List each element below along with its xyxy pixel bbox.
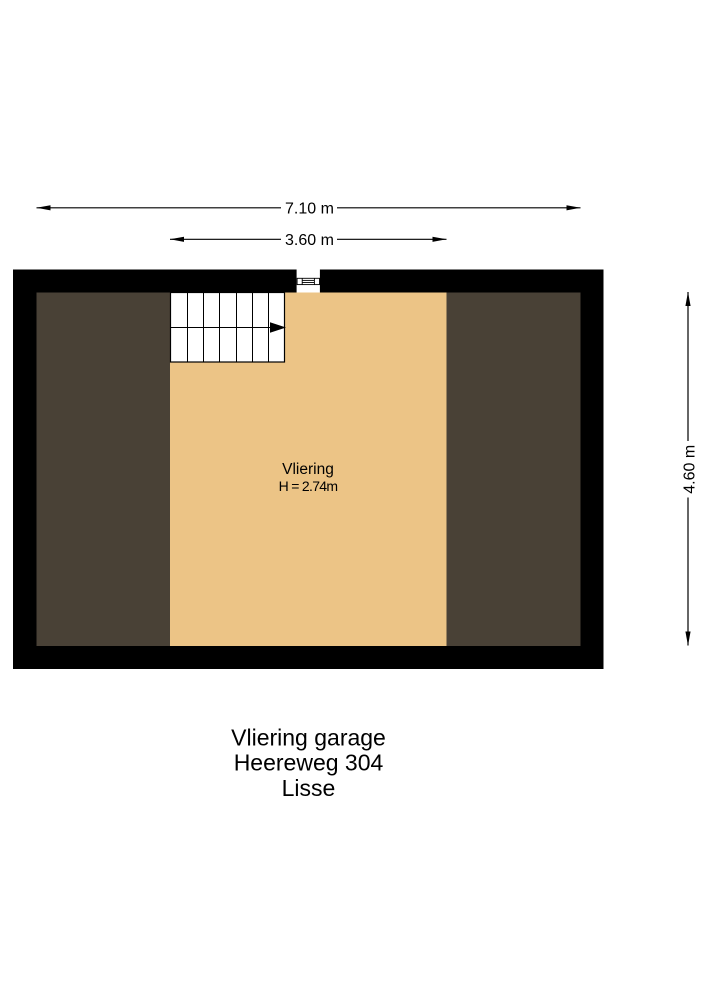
svg-text:H = 2.74m: H = 2.74m [279, 478, 338, 494]
svg-text:Vliering garage: Vliering garage [231, 724, 386, 750]
svg-text:7.10 m: 7.10 m [285, 200, 334, 217]
svg-text:3.60 m: 3.60 m [285, 232, 334, 249]
svg-text:Lisse: Lisse [282, 775, 336, 801]
svg-text:Vliering: Vliering [282, 461, 334, 478]
svg-text:Heereweg 304: Heereweg 304 [234, 750, 384, 776]
svg-text:4.60 m: 4.60 m [681, 445, 698, 494]
